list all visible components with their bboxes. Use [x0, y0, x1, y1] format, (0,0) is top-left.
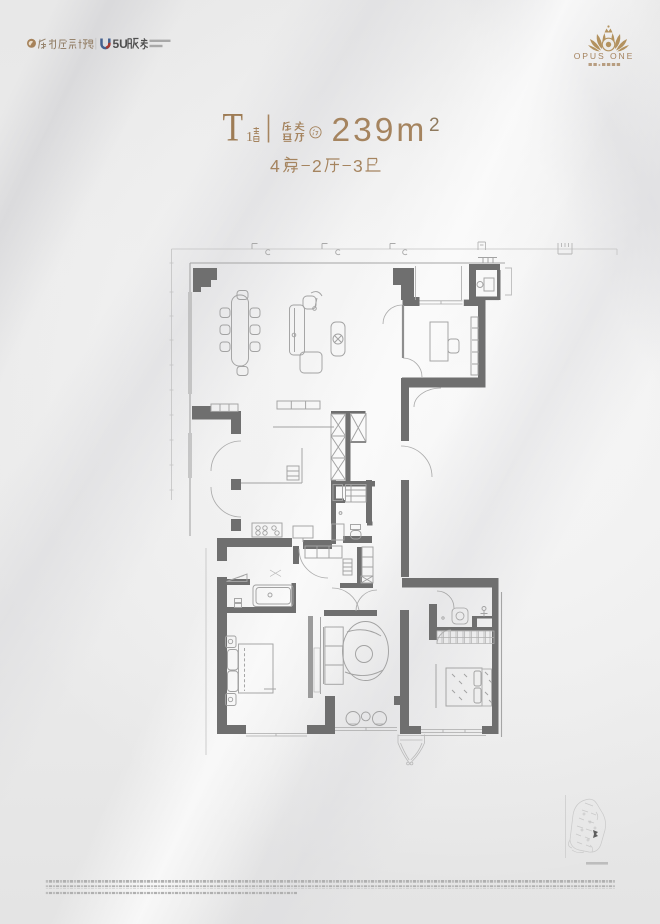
svg-text:239m: 239m — [332, 112, 428, 149]
svg-text:3: 3 — [353, 156, 363, 176]
svg-text:2: 2 — [312, 156, 322, 176]
svg-text:1: 1 — [246, 130, 253, 145]
svg-text:OPUS ONE: OPUS ONE — [574, 51, 635, 61]
svg-text:2: 2 — [429, 115, 440, 136]
svg-text:–: – — [343, 157, 352, 174]
svg-text:–: – — [302, 157, 311, 174]
svg-text:4: 4 — [270, 156, 280, 176]
svg-text:T: T — [223, 105, 244, 149]
svg-text:5U: 5U — [113, 37, 128, 51]
